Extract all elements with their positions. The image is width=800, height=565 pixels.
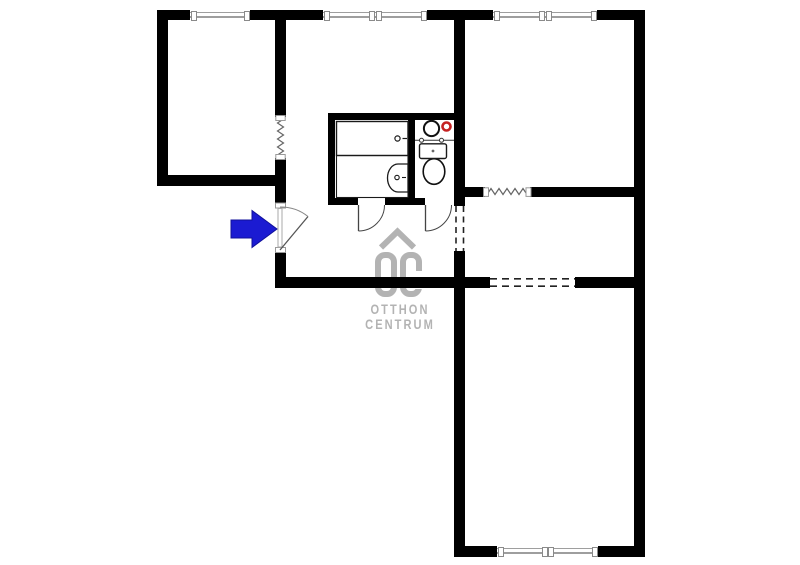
- left-room-south-wall: [157, 175, 286, 186]
- hall-west-wall-upper: [275, 20, 286, 117]
- window-cap: [498, 547, 504, 557]
- window-cap: [542, 547, 548, 557]
- logo-letter-c: [400, 252, 422, 297]
- window-right-room: [493, 10, 597, 20]
- bottom-wall-segment: [598, 546, 645, 557]
- window-cap: [191, 11, 197, 21]
- window-cap: [376, 11, 382, 21]
- logo-letter-o: [375, 252, 397, 297]
- watermark-text-line2: CENTRUM: [351, 317, 449, 332]
- dining-north-wall-segment: [454, 187, 485, 197]
- hall-west-wall-mid: [275, 158, 286, 204]
- window-left-room: [190, 10, 250, 20]
- top-wall-segment: [250, 10, 323, 20]
- window-cap: [369, 11, 375, 21]
- left-exterior-wall: [157, 10, 168, 186]
- bathroom-west-wall: [328, 113, 335, 205]
- window-glass-line: [190, 16, 250, 17]
- floor-plan: OTTHON CENTRUM: [0, 0, 800, 565]
- window-cap: [421, 11, 427, 21]
- center-wall-upper: [454, 20, 465, 206]
- window-middle-room: [323, 10, 427, 20]
- top-wall-segment: [427, 10, 493, 20]
- dining-south-wall: [575, 277, 645, 288]
- window-cap: [546, 11, 552, 21]
- bathroom-south-wall-segment: [328, 198, 358, 205]
- window-cap: [324, 11, 330, 21]
- window-bottom-room: [497, 546, 598, 557]
- window-cap: [592, 547, 598, 557]
- bathroom-north-wall: [328, 113, 454, 120]
- center-wall-lower: [454, 251, 465, 557]
- window-cap: [548, 547, 554, 557]
- bathroom-south-wall-segment: [385, 198, 425, 205]
- window-cap: [591, 11, 597, 21]
- watermark-text-line1: OTTHON: [351, 302, 449, 317]
- dining-north-wall-segment: [530, 187, 634, 197]
- window-cap: [494, 11, 500, 21]
- window-cap: [244, 11, 250, 21]
- window-cap: [539, 11, 545, 21]
- bathroom-wc-divider-wall: [408, 120, 415, 205]
- window-glass-line: [190, 12, 250, 13]
